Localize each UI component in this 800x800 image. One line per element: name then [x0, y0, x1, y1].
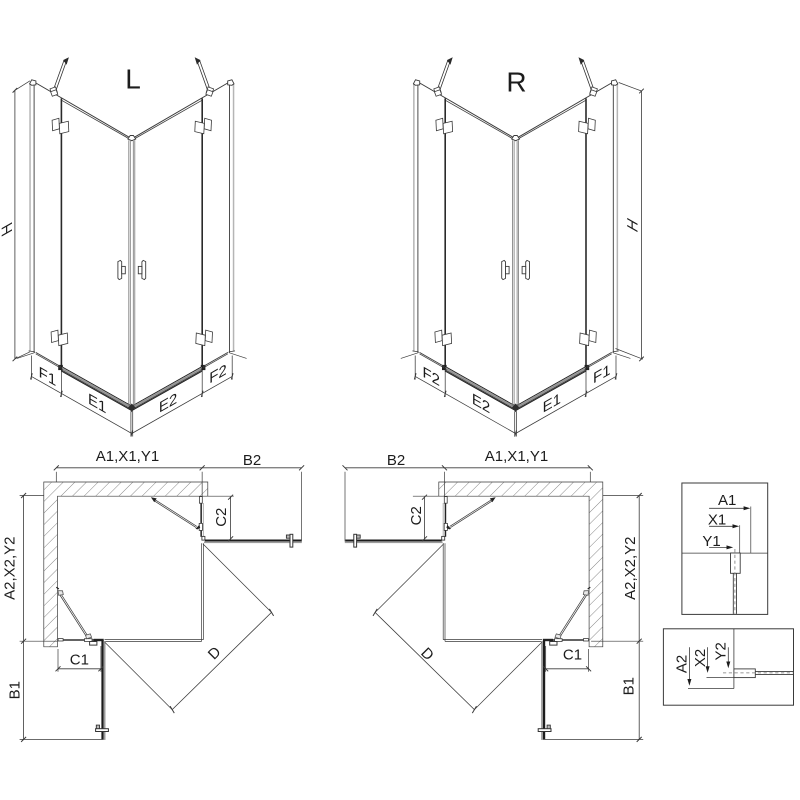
svg-text:X1: X1: [708, 512, 726, 529]
svg-text:D: D: [417, 644, 437, 664]
svg-text:B2: B2: [243, 452, 261, 469]
svg-text:C1: C1: [70, 652, 89, 669]
svg-text:C2: C2: [213, 508, 230, 527]
svg-text:F1: F1: [593, 361, 610, 388]
svg-text:A2,X2,Y2: A2,X2,Y2: [622, 537, 639, 600]
svg-text:H: H: [625, 215, 642, 235]
svg-text:B1: B1: [620, 677, 637, 695]
svg-text:H: H: [0, 219, 16, 239]
svg-text:D: D: [205, 643, 225, 663]
svg-text:Y2: Y2: [713, 642, 730, 660]
svg-text:B2: B2: [387, 452, 405, 469]
svg-text:Y1: Y1: [702, 533, 720, 550]
svg-text:A1,X1,Y1: A1,X1,Y1: [485, 448, 548, 465]
svg-text:L: L: [125, 64, 141, 95]
svg-text:B1: B1: [7, 681, 24, 699]
svg-text:A1: A1: [718, 492, 736, 509]
svg-text:X2: X2: [692, 649, 709, 667]
svg-text:C1: C1: [563, 647, 582, 664]
svg-text:F2: F2: [422, 363, 439, 390]
svg-text:F2: F2: [209, 361, 226, 388]
svg-text:A2: A2: [674, 655, 691, 673]
svg-text:F1: F1: [39, 363, 56, 390]
svg-text:C2: C2: [408, 506, 425, 525]
svg-text:R: R: [506, 67, 526, 98]
svg-text:A2,X2,Y2: A2,X2,Y2: [1, 537, 18, 600]
svg-text:A1,X1,Y1: A1,X1,Y1: [96, 448, 159, 465]
